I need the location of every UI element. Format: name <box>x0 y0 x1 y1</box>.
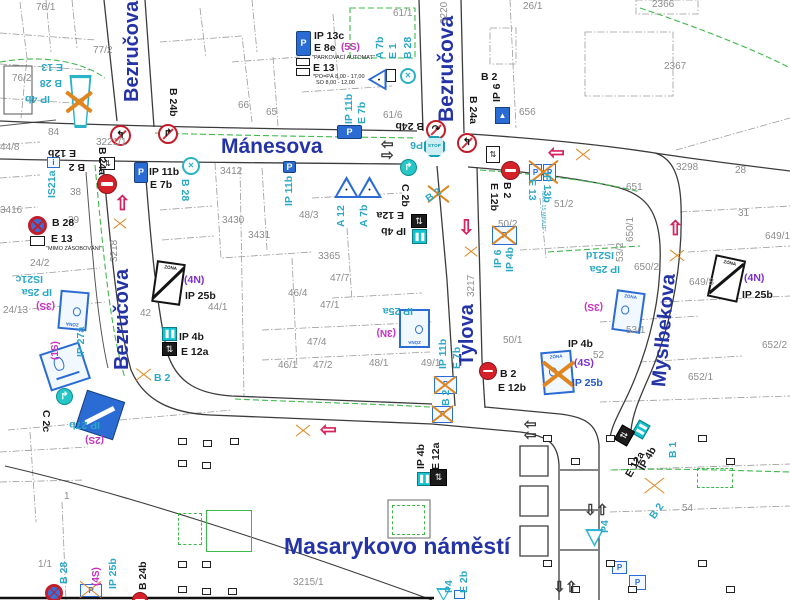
parking-bay-sign-icon: ❚❚ <box>162 327 177 341</box>
parking-bay-sign-icon: ❚❚ <box>417 472 431 486</box>
parcel-number-label: 656 <box>519 108 536 119</box>
parking-sign-icon: P <box>337 125 362 139</box>
sign-code-label: B 1 <box>668 442 679 458</box>
sign-code-label: IP 25b <box>572 378 603 389</box>
sign-code-label: E 1 <box>388 43 399 59</box>
sign-code-label: E 12a <box>431 443 442 470</box>
direction-arrow-icon: ⇧ <box>596 503 609 518</box>
sign-code-label: IS21d <box>586 249 614 260</box>
removed-mark-icon <box>540 352 576 396</box>
direction-arrow-icon: ⇩ <box>553 580 566 595</box>
parcel-number-label: 48/3 <box>299 211 318 222</box>
stage-tag-label: (4S) <box>92 567 103 586</box>
parcel-number-label: 3431 <box>248 231 270 242</box>
sign-code-label: A 7b <box>359 205 370 227</box>
direction-arrow-icon: ⇧ <box>565 580 578 595</box>
sign-code-label: B 24b <box>138 561 149 590</box>
sign-code-label: E 12b <box>498 383 526 394</box>
parcel-number-label: 47/4 <box>307 338 326 349</box>
sign-code-label: IP 6 <box>492 84 503 103</box>
removed-mark-icon <box>113 215 128 232</box>
parcel-number-label: 24/13 <box>3 306 28 317</box>
sign-code-label: A 7b <box>375 37 386 59</box>
parcel-number-label: 651 <box>626 183 643 194</box>
stage-tag-label: (4S) <box>574 358 594 369</box>
sign-code-label: B 28 <box>52 218 74 229</box>
parcel-number-label: 3220 <box>440 2 451 24</box>
parcel-number-label: 652/2 <box>762 341 787 352</box>
parcel-number-label: 1/1 <box>38 560 52 571</box>
street-name-label: Bezručova <box>112 269 133 370</box>
sign-code-label: B 2 <box>481 72 497 83</box>
building-footprint <box>726 586 735 593</box>
sign-code-label: IP 4b <box>25 93 50 104</box>
sign-code-label: B 28 <box>179 179 190 201</box>
building-footprint <box>628 586 637 593</box>
parcel-number-label: 28 <box>735 166 746 177</box>
sign-code-label: IP 4b <box>381 225 406 236</box>
parcel-number-label: 26/1 <box>523 2 542 13</box>
stage-tag-label: (4N) <box>184 275 204 286</box>
sign-code-label: IP 13c <box>314 31 344 42</box>
crossed-circle-sign-icon: ✕ <box>182 157 200 175</box>
green-area-outline <box>697 468 733 488</box>
direction-arrow-icon: ⇨ <box>381 148 394 163</box>
sign-code-label: P4 <box>600 520 611 533</box>
parcel-number-label: 52 <box>593 351 604 362</box>
parking-sign-icon: P <box>296 31 311 56</box>
sign-code-label: B 2 <box>154 373 170 384</box>
sign-code-label: P4 <box>444 580 455 593</box>
building-footprint <box>178 438 187 445</box>
sign-code-label: IP 11b <box>344 94 355 124</box>
sign-code-label: B 24a <box>467 96 478 124</box>
parcel-number-label: 652/1 <box>688 373 713 384</box>
sign-code-label: B 2 <box>500 369 516 380</box>
sign-code-label: IP 6 <box>493 250 504 269</box>
sign-code-label: E 13 <box>526 179 537 201</box>
parking-sign-icon: P <box>283 161 296 173</box>
building-footprint <box>543 435 552 442</box>
sign-code-label: C 2b <box>399 184 410 207</box>
parcel-number-label: 65 <box>266 108 277 119</box>
no-entry-sign-icon <box>97 174 117 194</box>
parcel-number-label: 47/7 <box>330 274 349 285</box>
stage-tag-label: (5S) <box>341 43 360 54</box>
parcel-number-label: 24/2 <box>30 259 49 270</box>
parcel-number-label: 3215/1 <box>293 578 324 589</box>
sign-code-label: E 13 <box>41 61 63 72</box>
parcel-number-label: 48/1 <box>369 359 388 370</box>
parcel-number-label: 47/2 <box>313 361 332 372</box>
sign-note-label: "MIMO ZÁSOBOVÁNÍ" <box>46 247 102 253</box>
sign-code-label: IP 11b <box>438 339 449 369</box>
parcel-number-label: 3412 <box>220 167 242 178</box>
no-stopping-sign-icon <box>28 216 47 235</box>
building-footprint <box>203 440 212 447</box>
sign-code-label: B 2 <box>69 161 85 172</box>
removed-mark-icon <box>669 247 686 264</box>
building-footprint <box>606 435 615 442</box>
sign-code-label: B 28 <box>40 77 62 88</box>
sign-note-label: SO 8,00 - 12,00 <box>316 81 355 87</box>
sign-code-label: E 12b <box>48 147 76 158</box>
parcel-number-label: 46/4 <box>288 289 307 300</box>
no-turn-sign-icon: ↱ <box>158 124 178 144</box>
building-footprint <box>230 438 239 445</box>
parcel-number-label: 3217 <box>467 275 478 297</box>
parcel-number-label: 650/1 <box>626 217 637 242</box>
building-footprint <box>698 435 707 442</box>
building-footprint <box>202 561 211 568</box>
parcel-number-label: 2367 <box>664 62 686 73</box>
parcel-number-label: 1 <box>64 492 70 503</box>
sign-code-label: IP 4b <box>505 247 516 272</box>
parcel-number-label: 38 <box>70 188 81 199</box>
additional-plate-icon: ⇅ <box>486 146 500 163</box>
parcel-number-label: 650/2 <box>634 263 659 274</box>
sign-code-label: B 28 <box>403 37 414 59</box>
zone-end-sign-icon: ZÓNA <box>151 260 186 306</box>
building-footprint <box>178 561 187 568</box>
sign-code-label: IP 4b <box>568 339 593 350</box>
sign-code-label: IP 25a <box>22 286 52 297</box>
sign-code-label: E 2b <box>459 571 470 593</box>
sign-note-label: "MAX 15 MINUT" <box>539 189 545 231</box>
sign-code-label: B 2 <box>441 390 452 406</box>
sign-code-label: IS21c <box>16 273 43 284</box>
building-footprint <box>543 560 552 567</box>
sign-code-label: IP 4b <box>416 444 427 469</box>
removed-mark-icon <box>464 243 479 260</box>
parking-bay-sign-icon: ❚❚ <box>412 229 427 244</box>
parcel-number-label: 76/1 <box>36 3 55 14</box>
building-footprint <box>228 588 237 595</box>
sign-note-label: "PARKOVACÍ AUTOMAT" <box>312 56 375 62</box>
stage-tag-label: (1S) <box>51 341 62 360</box>
parcel-number-label: 47/1 <box>320 301 339 312</box>
mandatory-direction-sign-icon: ↱ <box>400 159 417 176</box>
crossing-sign-icon: ▲ <box>495 107 510 124</box>
direction-arrow-icon: ⇩ <box>458 218 475 238</box>
sign-code-label: IP 4b <box>179 332 204 343</box>
building-footprint <box>202 462 211 469</box>
crossed-circle-sign-icon: ✕ <box>400 68 416 84</box>
removed-mark-icon <box>135 366 153 384</box>
building-footprint <box>726 458 735 465</box>
zone-sign-icon: ZÓNA <box>57 290 89 331</box>
parcel-number-label: 66 <box>238 101 249 112</box>
parcel-number-label: 2366 <box>652 0 674 11</box>
parcel-number-label: 3416 <box>0 206 22 217</box>
stage-tag-label: (3S) <box>584 301 603 312</box>
parcel-number-label: 44/1 <box>208 303 227 314</box>
sign-code-label: E 8e <box>314 43 336 54</box>
building-footprint <box>178 586 187 593</box>
additional-plate-icon <box>386 69 396 82</box>
parcel-number-label: 3298 <box>676 163 698 174</box>
additional-plate-icon <box>296 58 310 66</box>
sign-code-label: E 12b <box>488 183 499 211</box>
parcel-number-label: 77/2 <box>93 46 112 57</box>
removed-mark-icon <box>643 477 666 495</box>
removed-mark-icon <box>64 80 94 124</box>
mandatory-direction-sign-icon: ↱ <box>56 388 73 405</box>
no-stopping-sign-icon <box>45 584 63 600</box>
parking-lane-sign-icon: ⇅ <box>411 214 427 228</box>
no-turn-sign-icon: ↰ <box>457 133 477 153</box>
parcel-number-label: 3365 <box>318 252 340 263</box>
sign-code-label: B 24b <box>395 120 424 131</box>
no-entry-sign-icon <box>479 362 497 380</box>
parcel-number-label: 46/1 <box>278 361 297 372</box>
parcel-number-label: 31 <box>738 209 749 220</box>
parcel-number-label: 42 <box>140 309 151 320</box>
sign-code-label: IP 11b <box>284 176 295 206</box>
sign-code-label: E 13 <box>313 63 335 74</box>
no-entry-sign-icon <box>501 161 520 180</box>
sign-code-label: E 7b <box>357 102 368 124</box>
parcel-number-label: 84 <box>48 128 59 139</box>
sign-code-label: IP 25b <box>108 558 119 589</box>
parcel-number-label: 50/2 <box>498 220 517 231</box>
sign-code-label: IP 25a <box>383 305 413 316</box>
sign-code-label: IP 27a <box>76 327 87 357</box>
sign-code-label: C 2c <box>40 410 51 432</box>
green-area-outline <box>178 513 202 545</box>
parcel-number-label: 3430 <box>222 216 244 227</box>
sign-code-label: A 12 <box>336 205 347 227</box>
direction-arrow-icon: ⇦ <box>320 420 337 440</box>
parcel-number-label: 53/2 <box>616 243 627 262</box>
direction-arrow-icon: ⇧ <box>114 194 131 214</box>
sign-code-label: IP 27b <box>69 419 100 430</box>
parcel-number-label: 51/2 <box>554 200 573 211</box>
sign-code-label: E 7b <box>150 180 172 191</box>
removed-mark-icon <box>430 404 455 424</box>
parcel-number-label: 649/8 <box>689 278 714 289</box>
parcel-number-label: 44/8 <box>0 143 19 154</box>
parcel-number-label: 76/2 <box>12 74 31 85</box>
sign-code-label: B 24a <box>96 147 107 175</box>
sign-code-label: IP 11b <box>149 167 179 178</box>
sign-code-label: E 12a <box>181 347 208 358</box>
sign-code-label: B 28 <box>59 562 70 584</box>
building-footprint <box>178 460 187 467</box>
parking-lane-sign-icon: ⇅ <box>430 469 447 486</box>
sign-code-label: B 2 <box>501 182 512 198</box>
parcel-number-label: 3218 <box>110 240 121 262</box>
street-name-label: Masarykovo náměstí <box>284 534 510 558</box>
parking-lane-sign-icon: ⇅ <box>162 342 177 356</box>
direction-arrow-icon: ⇦ <box>524 428 537 443</box>
additional-plate-icon <box>296 68 310 76</box>
direction-arrow-icon: ⇩ <box>584 503 597 518</box>
traffic-plan-map: BezručovaBezručovaBezručovaMánesovaTylov… <box>0 0 790 600</box>
street-name-label: Mánesova <box>221 136 323 158</box>
parcel-number-label: 50/1 <box>503 336 522 347</box>
sign-code-label: E 7b <box>452 347 463 369</box>
direction-arrow-icon: ⇧ <box>667 219 684 239</box>
green-area-outline <box>206 510 252 552</box>
stage-tag-label: (3S) <box>36 300 55 311</box>
sign-code-label: B 24b <box>167 88 178 117</box>
sign-code-label: IP 25b <box>185 291 216 302</box>
street-name-label: Bezručova <box>436 16 458 122</box>
sign-code-label: P6 <box>410 139 423 150</box>
stage-tag-label: (3N) <box>377 327 396 338</box>
sign-code-label: E 12a <box>377 209 404 220</box>
sign-code-label: IP 25a <box>590 263 620 274</box>
building-footprint <box>202 588 211 595</box>
stage-tag-label: (2S) <box>85 434 104 445</box>
building-footprint <box>606 560 615 567</box>
parcel-number-label: 649/1 <box>765 232 790 243</box>
removed-mark-icon <box>295 423 312 438</box>
building-footprint <box>571 458 580 465</box>
parcel-number-label: 61/1 <box>393 9 412 20</box>
parcel-number-label: 53/1 <box>626 326 645 337</box>
parcel-number-label: 54 <box>682 504 693 515</box>
parking-sign-icon: P <box>134 162 148 183</box>
building-footprint <box>698 560 707 567</box>
additional-plate-icon <box>30 236 45 246</box>
removed-mark-icon <box>575 147 592 162</box>
sign-code-label: E 13 <box>51 234 73 245</box>
sign-code-label: IP 25b <box>742 290 773 301</box>
sign-code-label: IS21a <box>47 171 58 198</box>
green-area-outline <box>392 505 425 535</box>
street-name-label: Bezručova <box>122 1 143 102</box>
stage-tag-label: (4N) <box>744 273 764 284</box>
